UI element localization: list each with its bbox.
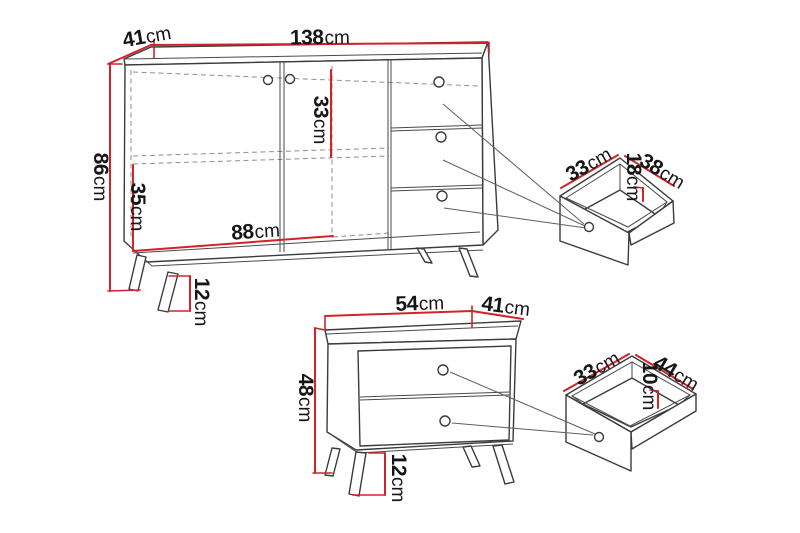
sideboard-drawer-knob-1: [434, 77, 444, 87]
sideboard-drawer-height-label: 18cm: [622, 153, 645, 202]
sideboard-leg-height-unit: cm: [190, 301, 211, 326]
sideboard-upper-section-unit: cm: [309, 119, 330, 144]
sideboard-width-label: 138cm: [290, 25, 350, 49]
chest-width-value: 54: [395, 292, 419, 316]
chest-height-label: 48cm: [294, 374, 317, 423]
sideboard-leg-front-right: [459, 248, 478, 277]
sideboard-height-unit: cm: [89, 176, 110, 201]
sideboard-upper-section-label: 33cm: [309, 96, 332, 145]
sideboard-right-door-knob: [286, 75, 295, 84]
sideboard-depth-unit: cm: [144, 23, 173, 48]
sideboard-width-unit: cm: [324, 27, 350, 48]
chest-leg-front-right: [493, 445, 514, 484]
sideboard-height-value: 86: [89, 153, 112, 175]
chest-drawer-detail-knob: [595, 433, 604, 442]
chest-width-unit: cm: [418, 293, 444, 315]
sideboard: [124, 42, 498, 312]
sideboard-upper-section-value: 33: [309, 96, 332, 118]
sideboard-front: [124, 58, 483, 262]
sideboard-lower-section-unit: cm: [126, 206, 147, 231]
chest: [325, 321, 521, 496]
chest-drawer-height-label: 10cm: [638, 362, 661, 411]
chest-leg-front-left: [349, 452, 366, 496]
sideboard-lower-section-label: 35cm: [126, 183, 149, 232]
chest-leg-height-unit: cm: [387, 477, 408, 502]
sideboard-width-value: 138: [290, 26, 325, 50]
chest-drawer-height-unit: cm: [638, 385, 659, 410]
chest-leg-height-label: 12cm: [387, 454, 410, 503]
sideboard-drawer-height-value: 18: [622, 153, 645, 176]
chest-depth-value: 41: [480, 292, 506, 318]
chest-leg-back-left: [325, 448, 340, 476]
sideboard-interior-width-label: 88cm: [230, 218, 280, 244]
sideboard-leg-front-left: [158, 272, 178, 312]
chest-drawer-height-value: 10: [638, 362, 661, 384]
chest-drawer-knob-1: [438, 365, 448, 375]
chest-depth-label: 41cm: [480, 292, 531, 321]
diagram-canvas: 41cm 138cm 86cm 33cm 35cm 88cm 12cm 33cm…: [0, 0, 800, 533]
sideboard-interior-width-unit: cm: [254, 220, 281, 243]
chest-height-unit: cm: [294, 397, 315, 422]
sideboard-lower-section-value: 35: [126, 183, 149, 206]
chest-drawer-knob-2: [440, 416, 450, 426]
chest-height-value: 48: [294, 374, 317, 397]
chest-width-label: 54cm: [395, 291, 444, 316]
sideboard-height-label: 86cm: [89, 153, 112, 202]
sideboard-leg-height-value: 12: [190, 278, 213, 300]
sideboard-leg-back-left: [129, 255, 146, 291]
sideboard-interior-width-value: 88: [230, 220, 255, 245]
sideboard-drawer-knob-2: [436, 132, 446, 142]
chest-leg-height-value: 12: [387, 454, 410, 476]
sideboard-leg-height-label: 12cm: [190, 278, 213, 327]
sideboard-drawer-knob-3: [437, 191, 447, 201]
chest-leg-back-right: [463, 446, 480, 467]
chest-depth-unit: cm: [503, 297, 531, 321]
sideboard-drawer-detail-knob: [585, 223, 594, 232]
furniture-dimension-diagram: 41cm 138cm 86cm 33cm 35cm 88cm 12cm 33cm…: [0, 0, 800, 533]
sideboard-left-door-knob: [264, 76, 273, 85]
sideboard-drawer-height-unit: cm: [622, 176, 643, 201]
sideboard-leg-back-right: [417, 248, 432, 263]
